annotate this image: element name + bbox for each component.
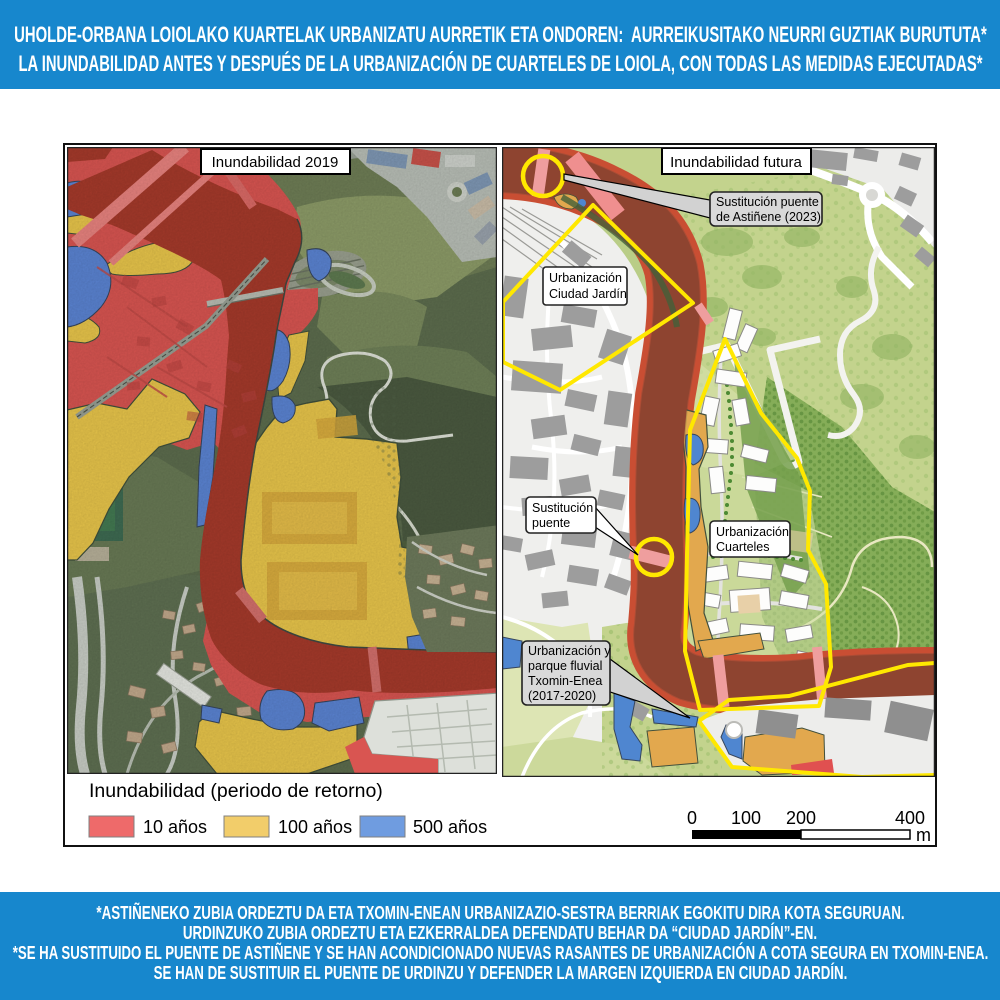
svg-text:Ciudad Jardín: Ciudad Jardín <box>549 287 627 301</box>
svg-text:Urbanización: Urbanización <box>716 525 789 539</box>
svg-text:de Astiñene (2023): de Astiñene (2023) <box>716 210 821 224</box>
svg-text:Inundabilidad 2019: Inundabilidad 2019 <box>212 154 339 171</box>
svg-text:Inundabilidad futura: Inundabilidad futura <box>670 154 802 171</box>
svg-text:Cuarteles: Cuarteles <box>716 540 770 554</box>
svg-text:Txomin-Enea: Txomin-Enea <box>528 674 602 688</box>
svg-text:parque fluvial: parque fluvial <box>528 659 602 673</box>
svg-text:Sustitución: Sustitución <box>532 501 593 515</box>
svg-text:Sustitución puente: Sustitución puente <box>716 195 819 209</box>
svg-text:Urbanización y: Urbanización y <box>528 644 611 658</box>
svg-text:puente: puente <box>532 516 570 530</box>
svg-text:(2017-2020): (2017-2020) <box>528 689 596 703</box>
svg-text:Urbanización: Urbanización <box>549 271 622 285</box>
